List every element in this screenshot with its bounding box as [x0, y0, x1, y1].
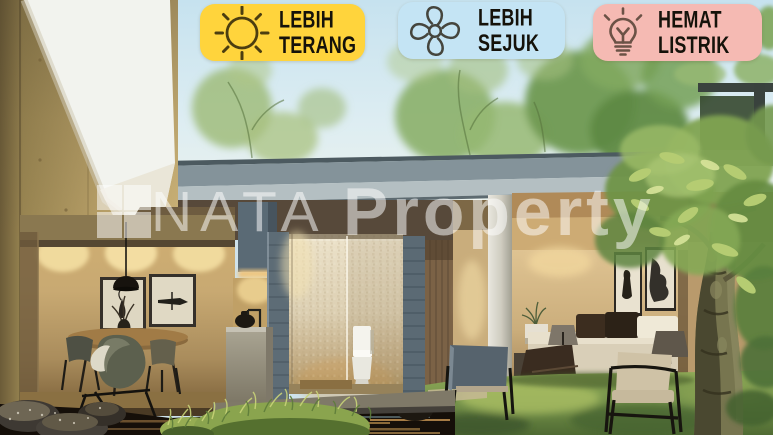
svg-text:NATA: NATA: [151, 180, 327, 244]
svg-text:Property: Property: [343, 174, 655, 250]
